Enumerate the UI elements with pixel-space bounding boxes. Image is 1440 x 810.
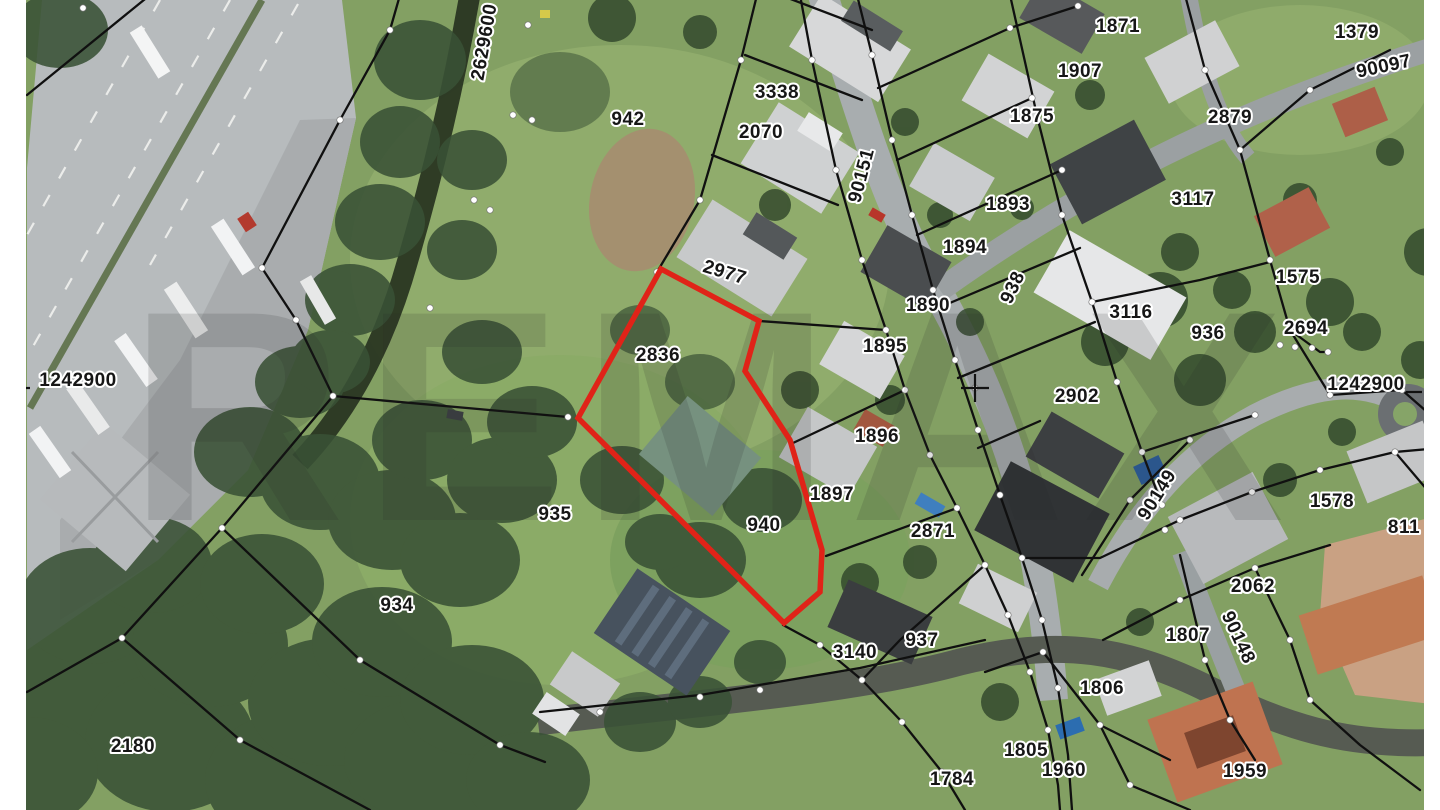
parcel-label: 1893 [986, 194, 1030, 215]
parcel-label: 3338 [755, 82, 799, 103]
cadastral-map: REMAX 9423338207029779015128361871190718… [0, 0, 1440, 810]
parcel-label: 3116 [1109, 302, 1152, 323]
parcel-label: 3117 [1171, 189, 1214, 210]
parcel-label: 811 [1388, 517, 1420, 538]
parcel-label: 1959 [1223, 761, 1267, 782]
parcel-label: 2871 [911, 521, 955, 542]
parcel-label: 1875 [1010, 106, 1054, 127]
parcel-label: 1890 [906, 295, 950, 316]
parcel-label: 2070 [739, 122, 783, 143]
parcel-label: 1805 [1004, 740, 1048, 761]
parcel-label: 2879 [1208, 107, 1252, 128]
parcel-label: 935 [538, 504, 571, 525]
parcel-label: 1242900 [39, 370, 116, 391]
parcel-label: 2180 [111, 736, 155, 757]
parcel-label: 937 [905, 630, 938, 651]
parcel-label: 1242900 [1327, 374, 1404, 395]
parcel-label: 1578 [1310, 491, 1354, 512]
parcel-label: 1575 [1276, 267, 1320, 288]
parcel-label: 940 [747, 515, 780, 536]
parcel-label: 1894 [943, 237, 987, 258]
parcel-label: 2902 [1055, 386, 1099, 407]
parcel-label: 934 [380, 595, 413, 616]
parcel-label: 1897 [810, 484, 854, 505]
parcel-label: 1895 [863, 336, 907, 357]
parcel-label: 1379 [1335, 22, 1379, 43]
parcel-label: 942 [611, 109, 644, 130]
vehicle [540, 10, 550, 18]
parcel-label: 936 [1191, 323, 1224, 344]
parcel-label: 1896 [855, 426, 899, 447]
parcel-label: 2694 [1284, 318, 1328, 339]
parcel-label: 1784 [930, 769, 974, 790]
parcel-label: 1907 [1058, 61, 1102, 82]
parcel-label: 1960 [1042, 760, 1086, 781]
parcel-label: 2062 [1231, 576, 1275, 597]
parcel-label: 1871 [1096, 16, 1140, 37]
parcel-label: 3140 [833, 642, 877, 663]
parcel-label: 1806 [1080, 678, 1124, 699]
parcel-label: 1807 [1166, 625, 1210, 646]
map-canvas: REMAX 9423338207029779015128361871190718… [0, 0, 1440, 810]
parcel-label: 2836 [636, 345, 680, 366]
